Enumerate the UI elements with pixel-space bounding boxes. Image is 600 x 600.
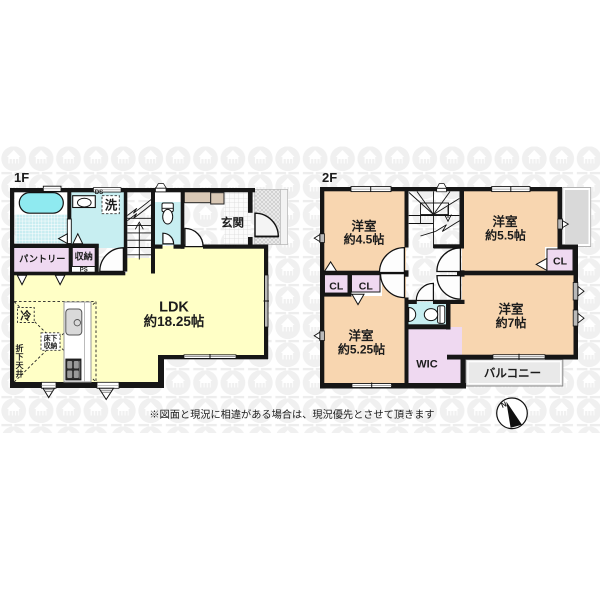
svg-text:CL: CL	[329, 281, 344, 293]
svg-text:玄関: 玄関	[221, 216, 244, 230]
svg-text:床下: 床下	[44, 334, 58, 343]
svg-text:冷: 冷	[20, 309, 31, 323]
svg-text:折: 折	[16, 343, 24, 353]
svg-text:約5.5帖: 約5.5帖	[485, 227, 526, 242]
svg-text:井: 井	[16, 369, 24, 379]
svg-text:約5.25帖: 約5.25帖	[338, 341, 385, 356]
svg-text:洋室: 洋室	[348, 328, 374, 343]
svg-text:洋室: 洋室	[498, 302, 524, 317]
svg-text:洋室: 洋室	[351, 219, 377, 234]
svg-text:バルコニー: バルコニー	[484, 367, 541, 380]
svg-text:洗: 洗	[105, 198, 118, 213]
svg-text:パントリー: パントリー	[19, 253, 65, 264]
svg-text:2F: 2F	[322, 170, 337, 185]
svg-text:DS: DS	[95, 189, 104, 196]
svg-text:約18.25帖: 約18.25帖	[144, 313, 205, 329]
svg-text:約7帖: 約7帖	[496, 315, 527, 330]
svg-text:CL: CL	[359, 281, 374, 293]
svg-text:PS: PS	[80, 268, 88, 274]
svg-text:収納: 収納	[75, 251, 93, 262]
svg-text:収納: 収納	[44, 341, 58, 350]
svg-text:1F: 1F	[14, 170, 29, 185]
svg-text:※図面と現況に相違がある場合は、現況優先とさせて頂きます: ※図面と現況に相違がある場合は、現況優先とさせて頂きます	[149, 408, 434, 421]
svg-text:CL: CL	[553, 256, 568, 268]
svg-text:WIC: WIC	[416, 359, 437, 371]
svg-text:洋室: 洋室	[492, 214, 518, 229]
svg-text:約4.5帖: 約4.5帖	[344, 232, 385, 247]
